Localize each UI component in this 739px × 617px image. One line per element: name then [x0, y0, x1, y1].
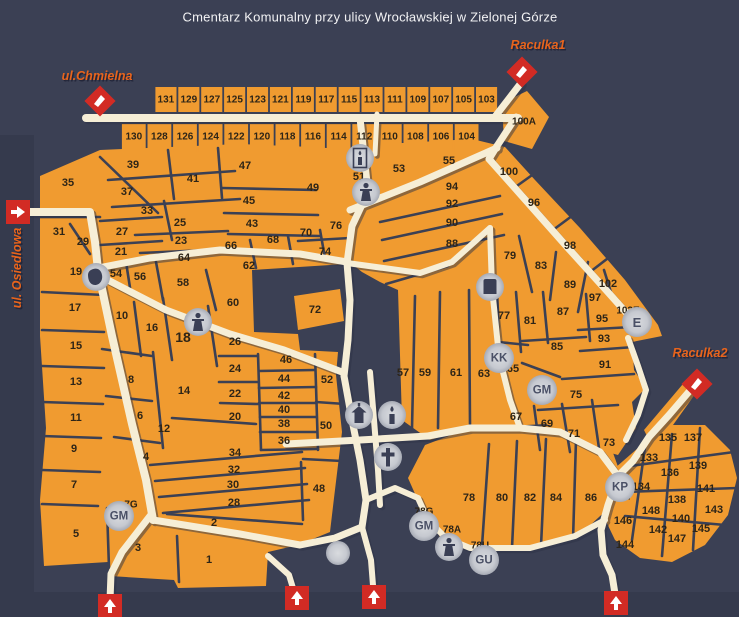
section-label-13: 13: [70, 376, 82, 388]
section-label-72: 72: [309, 304, 321, 316]
section-label-88: 88: [446, 238, 458, 250]
section-label-62: 62: [243, 260, 255, 272]
section-label-67: 67: [510, 411, 522, 423]
section-label-120: 120: [253, 132, 270, 143]
section-label-102: 102: [599, 278, 617, 290]
section-label-95: 95: [596, 313, 608, 325]
section-label-2: 2: [211, 517, 217, 529]
walkway: [375, 114, 377, 154]
section-label-27: 27: [116, 226, 128, 238]
section-label-41: 41: [187, 173, 199, 185]
badge-label: E: [633, 315, 642, 330]
plot-border: [220, 403, 258, 404]
street-label-osiedlowa: ul. Osiedlowa: [10, 228, 24, 309]
section-label-23: 23: [175, 235, 187, 247]
dot-icon: [326, 541, 350, 565]
section-label-91: 91: [599, 359, 611, 371]
badge-label: GM: [533, 385, 552, 397]
section-label-85: 85: [551, 341, 563, 353]
statue-icon: [352, 178, 380, 206]
section-label-98: 98: [564, 240, 576, 252]
section-label-146: 146: [614, 515, 632, 527]
section-label-42: 42: [278, 390, 290, 402]
cemetery-map: 1311291271251231211191171151131111091071…: [0, 0, 739, 617]
section-label-133: 133: [640, 452, 658, 464]
section-label-11: 11: [70, 412, 82, 424]
section-label-116: 116: [305, 132, 322, 143]
section-label-124: 124: [202, 132, 219, 143]
section-label-29: 29: [77, 236, 89, 248]
section-label-113: 113: [364, 95, 381, 106]
section-label-129: 129: [180, 95, 197, 106]
section-label-135: 135: [659, 432, 677, 444]
section-label-75: 75: [570, 389, 582, 401]
section-label-122: 122: [228, 132, 245, 143]
section-label-104: 104: [458, 132, 475, 143]
section-label-108: 108: [407, 132, 424, 143]
section-label-111: 111: [387, 95, 403, 106]
section-label-5: 5: [73, 528, 79, 540]
section-label-128: 128: [151, 132, 168, 143]
section-label-83: 83: [535, 260, 547, 272]
section-label-68: 68: [267, 234, 279, 246]
entrance-arrow-icon[interactable]: [604, 591, 628, 615]
section-label-84: 84: [550, 492, 563, 504]
street-label-chmielna: ul.Chmielna: [62, 69, 133, 83]
section-label-130: 130: [125, 132, 142, 143]
section-label-97: 97: [589, 292, 601, 304]
section-label-14: 14: [178, 385, 191, 397]
section-label-139: 139: [689, 460, 707, 472]
section-label-33: 33: [141, 205, 153, 217]
section-label-28: 28: [228, 497, 240, 509]
section-label-66: 66: [225, 240, 237, 252]
section-label-19: 19: [70, 266, 82, 278]
section-label-24: 24: [229, 363, 242, 375]
section-label-16: 16: [146, 322, 158, 334]
entrance-arrow-icon[interactable]: [6, 200, 30, 224]
section-label-63: 63: [478, 368, 490, 380]
page-title: Cmentarz Komunalny przy ulicy Wrocławski…: [183, 10, 558, 25]
section-label-38: 38: [278, 418, 290, 430]
section-label-58: 58: [177, 277, 189, 289]
plot-border: [259, 387, 316, 388]
section-label-57: 57: [397, 367, 409, 379]
plot-border: [469, 290, 470, 424]
section-label-79: 79: [504, 250, 516, 262]
statue-icon: [435, 533, 463, 561]
section-label-37: 37: [121, 186, 133, 198]
section-label-32: 32: [228, 464, 240, 476]
section-label-45: 45: [243, 195, 255, 207]
section-label-70: 70: [300, 227, 312, 239]
section-label-118: 118: [279, 132, 296, 143]
badge-label: GM: [415, 521, 434, 533]
plot-border: [259, 370, 315, 371]
section-label-49: 49: [307, 182, 319, 194]
section-label-21: 21: [115, 246, 127, 258]
section-label-74: 74: [319, 246, 332, 258]
section-label-86: 86: [585, 492, 597, 504]
section-label-40: 40: [278, 404, 290, 416]
street-label-raculka2: Raculka2: [673, 346, 728, 360]
section-label-82: 82: [524, 492, 536, 504]
cross-icon: [374, 443, 402, 471]
section-label-59: 59: [419, 367, 431, 379]
section-label-119: 119: [295, 95, 312, 106]
street-label-raculka1: Raculka1: [511, 38, 566, 52]
section-label-9: 9: [71, 443, 77, 455]
badge-label: GM: [110, 511, 129, 523]
section-label-10: 10: [116, 310, 128, 322]
badge-label: KP: [612, 482, 628, 494]
section-label-80: 80: [496, 492, 508, 504]
gm-badge: GM: [104, 501, 134, 531]
section-label-46: 46: [280, 354, 292, 366]
section-label-93: 93: [598, 333, 610, 345]
section-label-12: 12: [158, 423, 170, 435]
section-label-1: 1: [206, 554, 212, 566]
section-label-73: 73: [603, 437, 615, 449]
cemetery-map-page: 1311291271251231211191171151131111091071…: [0, 0, 739, 617]
section-label-112: 112: [356, 132, 373, 143]
section-label-25: 25: [174, 217, 186, 229]
gm-badge: GM: [527, 375, 557, 405]
section-label-106: 106: [433, 132, 450, 143]
section-label-8: 8: [128, 374, 134, 386]
section-label-131: 131: [158, 95, 175, 106]
section-label-26: 26: [229, 336, 241, 348]
gm-badge: GM: [409, 511, 439, 541]
section-label-61: 61: [450, 367, 462, 379]
section-label-30: 30: [227, 479, 239, 491]
section-label-4: 4: [143, 451, 150, 463]
section-label-136: 136: [661, 467, 679, 479]
section-label-52: 52: [321, 374, 333, 386]
section-label-39: 39: [127, 159, 139, 171]
kp-badge: KP: [605, 472, 635, 502]
section-label-141: 141: [697, 483, 715, 495]
lantern-icon: [346, 144, 374, 172]
section-label-48: 48: [313, 483, 325, 495]
grave-icon: [476, 273, 504, 301]
section-label-148: 148: [642, 505, 660, 517]
section-label-110: 110: [382, 132, 399, 143]
section-label-138: 138: [668, 494, 686, 506]
section-label-140: 140: [672, 513, 690, 525]
section-label-71: 71: [568, 428, 580, 440]
section-label-56: 56: [134, 271, 146, 283]
e-badge: E: [622, 307, 652, 337]
section-label-125: 125: [226, 95, 243, 106]
section-label-126: 126: [177, 132, 194, 143]
section-label-55: 55: [443, 155, 455, 167]
section-label-60: 60: [227, 297, 239, 309]
section-label-145: 145: [692, 523, 710, 535]
section-label-78: 78: [463, 492, 475, 504]
section-label-144: 144: [616, 539, 635, 551]
entrance-arrow-icon[interactable]: [362, 585, 386, 609]
section-label-50: 50: [320, 420, 332, 432]
candle-icon: [378, 401, 406, 429]
section-label-77: 77: [498, 310, 510, 322]
section-label-89: 89: [564, 279, 576, 291]
section-label-109: 109: [409, 95, 426, 106]
section-label-6: 6: [137, 410, 143, 422]
section-label-20: 20: [229, 411, 241, 423]
section-label-22: 22: [229, 388, 241, 400]
kk-badge: KK: [484, 343, 514, 373]
section-label-143: 143: [705, 504, 723, 516]
badge-label: GU: [475, 555, 492, 567]
section-label-47: 47: [239, 160, 251, 172]
monument-icon: [82, 263, 110, 291]
section-label-100A: 100A: [512, 117, 536, 128]
section-label-31: 31: [53, 226, 65, 238]
section-label-87: 87: [557, 306, 569, 318]
statue-icon: [184, 308, 212, 336]
section-label-44: 44: [278, 373, 291, 385]
section-label-69: 69: [541, 418, 553, 430]
section-label-35: 35: [62, 177, 74, 189]
section-label-96: 96: [528, 197, 540, 209]
section-label-142: 142: [649, 524, 667, 536]
section-label-92: 92: [446, 198, 458, 210]
chapel-icon: [345, 401, 373, 429]
section-label-17: 17: [69, 302, 81, 314]
section-label-34: 34: [229, 447, 242, 459]
section-label-54: 54: [110, 268, 123, 280]
section-label-105: 105: [455, 95, 472, 106]
gu-badge: GU: [469, 545, 499, 575]
section-label-147: 147: [668, 533, 686, 545]
section-label-36: 36: [278, 435, 290, 447]
section-label-137: 137: [684, 432, 702, 444]
section-label-94: 94: [446, 181, 459, 193]
section-label-123: 123: [249, 95, 266, 106]
section-label-15: 15: [70, 340, 82, 352]
section-label-114: 114: [331, 132, 348, 143]
section-label-76: 76: [330, 220, 342, 232]
section-label-121: 121: [272, 95, 289, 106]
entrance-arrow-icon[interactable]: [98, 594, 122, 617]
section-label-115: 115: [341, 95, 358, 106]
entrance-arrow-icon[interactable]: [285, 586, 309, 610]
section-label-117: 117: [318, 95, 335, 106]
section-label-3: 3: [135, 542, 141, 554]
section-label-127: 127: [203, 95, 220, 106]
section-label-100: 100: [500, 166, 518, 178]
section-label-53: 53: [393, 163, 405, 175]
section-label-107: 107: [432, 95, 449, 106]
badge-label: KK: [491, 353, 508, 365]
section-label-43: 43: [246, 218, 258, 230]
section-label-103: 103: [478, 95, 495, 106]
section-label-81: 81: [524, 315, 536, 327]
section-label-7: 7: [71, 479, 77, 491]
section-label-90: 90: [446, 217, 458, 229]
section-label-64: 64: [178, 252, 191, 264]
